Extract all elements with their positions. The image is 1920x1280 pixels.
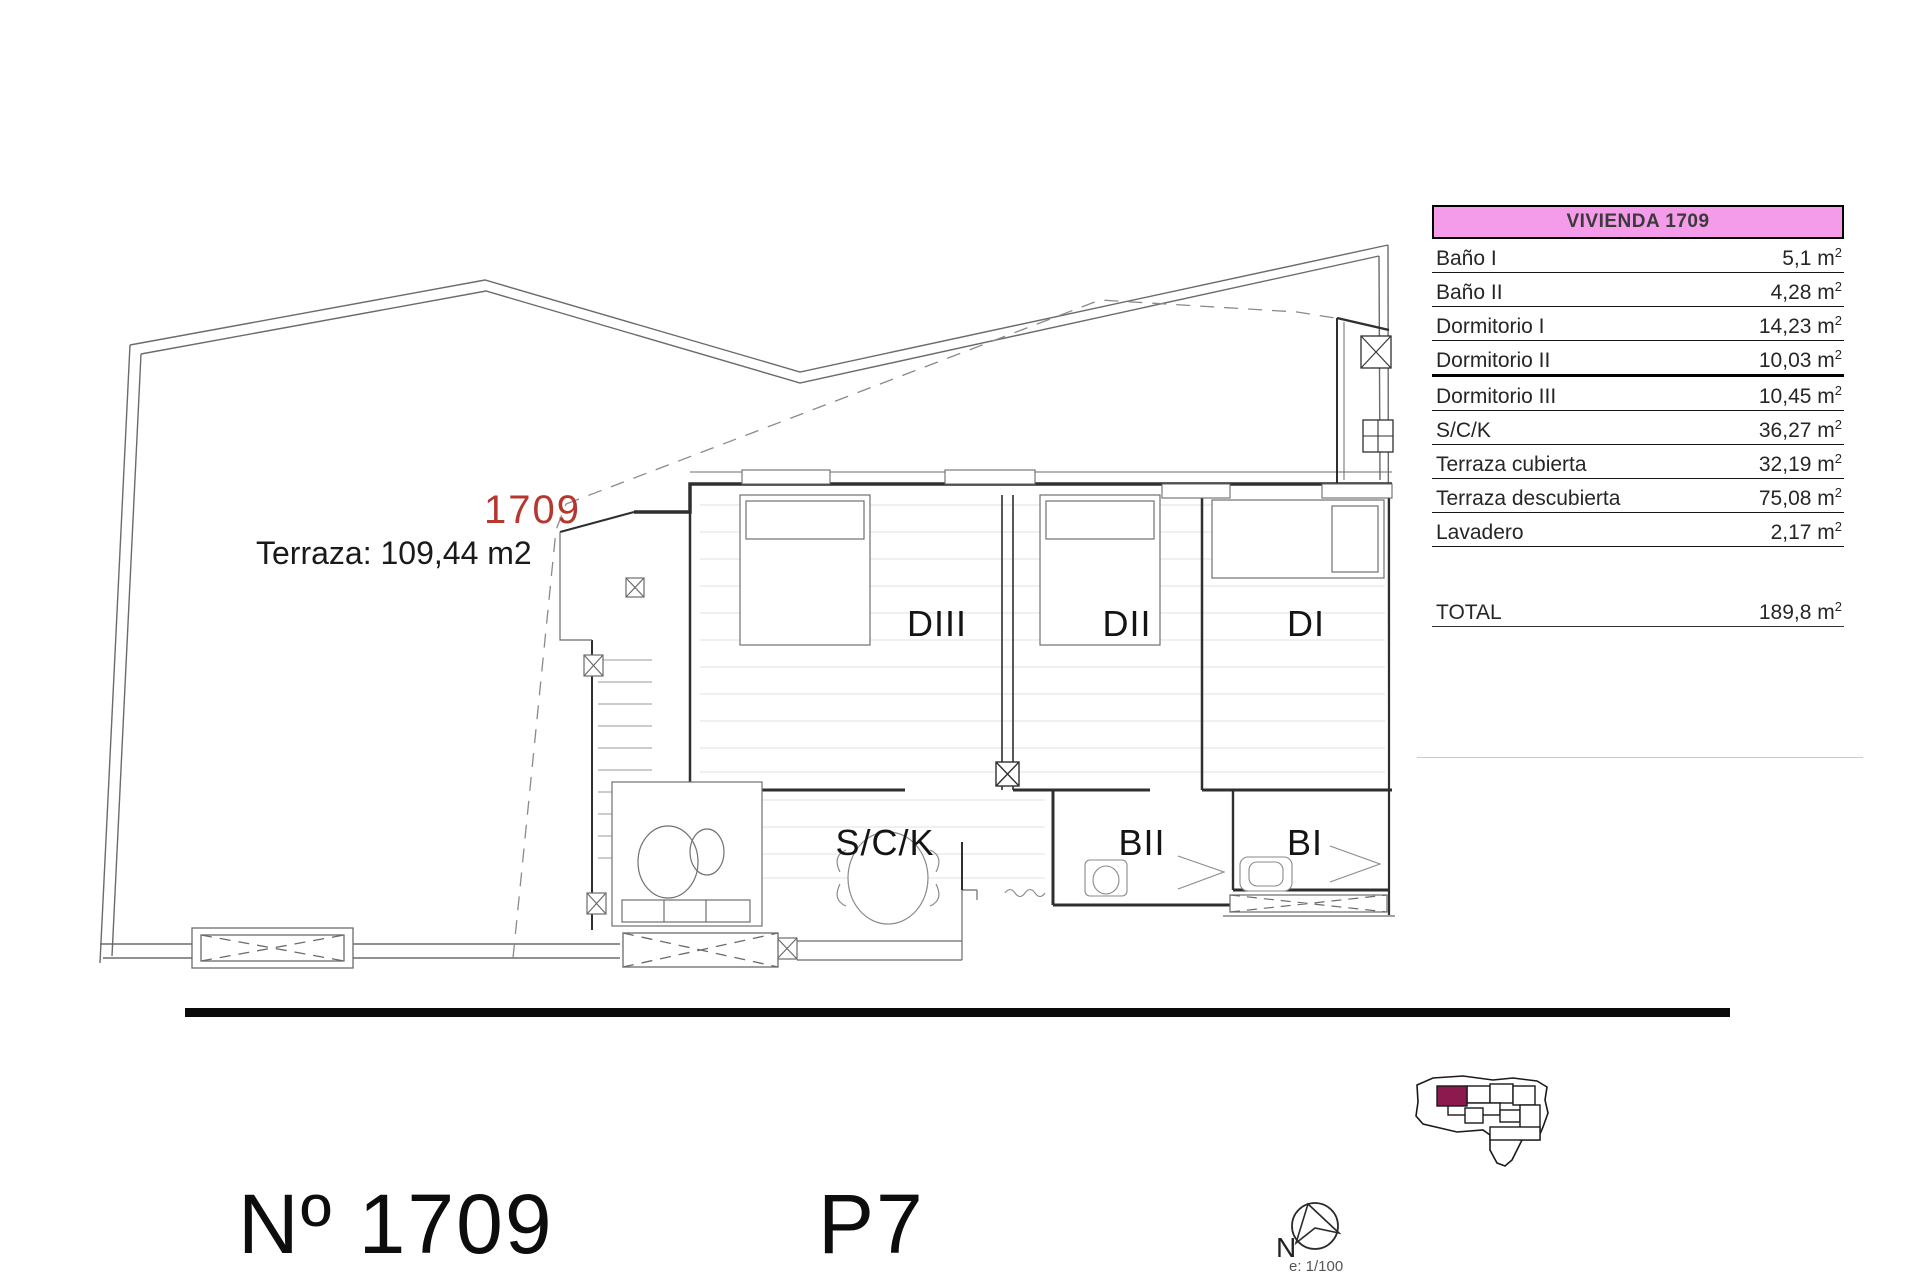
area-table-row: Lavadero 2,17 m2 bbox=[1432, 513, 1844, 547]
row-label: Baño I bbox=[1436, 247, 1497, 271]
total-label: TOTAL bbox=[1436, 601, 1502, 625]
area-table-body: Baño I 5,1 m2 Baño II 4,28 m2 Dormitorio… bbox=[1432, 239, 1844, 547]
area-table-row: Terraza cubierta 32,19 m2 bbox=[1432, 445, 1844, 479]
planter-box-kitchen bbox=[623, 933, 778, 967]
row-label: S/C/K bbox=[1436, 419, 1491, 443]
footer-separator-line bbox=[185, 1008, 1730, 1017]
floorplan-page: 1709 Terraza: 109,44 m2 DIII DII DI S/C/… bbox=[0, 0, 1920, 1280]
row-label: Dormitorio I bbox=[1436, 315, 1545, 339]
row-value: 10,03 m2 bbox=[1759, 347, 1842, 373]
keyplan-unit-highlight bbox=[1437, 1086, 1467, 1106]
row-label: Terraza cubierta bbox=[1436, 453, 1587, 477]
unit-number-on-plan: 1709 bbox=[484, 488, 581, 533]
terrace-area-label: Terraza: 109,44 m2 bbox=[256, 535, 532, 572]
area-table-row: Baño II 4,28 m2 bbox=[1432, 273, 1844, 307]
area-table-row: Dormitorio III 10,45 m2 bbox=[1432, 377, 1844, 411]
row-value: 2,17 m2 bbox=[1771, 519, 1842, 545]
area-table-row: Baño I 5,1 m2 bbox=[1432, 239, 1844, 273]
area-table: VIVIENDA 1709 Baño I 5,1 m2 Baño II 4,28… bbox=[1432, 205, 1844, 627]
area-table-row: Dormitorio I 14,23 m2 bbox=[1432, 307, 1844, 341]
room-label-dormitorio-iii: DIII bbox=[907, 603, 967, 645]
area-table-total-row: TOTAL 189,8 m2 bbox=[1432, 593, 1844, 627]
row-value: 5,1 m2 bbox=[1782, 245, 1842, 271]
row-value: 36,27 m2 bbox=[1759, 417, 1842, 443]
row-value: 32,19 m2 bbox=[1759, 451, 1842, 477]
kitchen-unit bbox=[612, 782, 762, 926]
row-label: Dormitorio II bbox=[1436, 349, 1550, 373]
planter-box-left bbox=[192, 928, 353, 968]
room-label-sck: S/C/K bbox=[835, 822, 934, 864]
area-table-row: Dormitorio II 10,03 m2 bbox=[1432, 341, 1844, 377]
planter-box-bi bbox=[1223, 895, 1395, 916]
north-arrow-icon bbox=[1292, 1203, 1339, 1249]
area-table-row: S/C/K 36,27 m2 bbox=[1432, 411, 1844, 445]
row-label: Lavadero bbox=[1436, 521, 1524, 545]
total-value: 189,8 m2 bbox=[1759, 599, 1842, 625]
row-label: Baño II bbox=[1436, 281, 1503, 305]
table-frame-line bbox=[1417, 757, 1863, 758]
sheet-unit-title: Nº 1709 bbox=[238, 1176, 554, 1273]
room-label-bano-i: BI bbox=[1287, 822, 1323, 864]
scale-label: e: 1/100 bbox=[1289, 1258, 1343, 1275]
room-label-dormitorio-i: DI bbox=[1287, 603, 1325, 645]
pillar-x bbox=[996, 762, 1019, 786]
row-value: 10,45 m2 bbox=[1759, 383, 1842, 409]
row-label: Terraza descubierta bbox=[1436, 487, 1620, 511]
sheet-floor-label: P7 bbox=[818, 1176, 925, 1273]
room-label-dormitorio-ii: DII bbox=[1102, 603, 1151, 645]
lavadero-room bbox=[1337, 318, 1393, 483]
row-value: 14,23 m2 bbox=[1759, 313, 1842, 339]
room-label-bano-ii: BII bbox=[1118, 822, 1165, 864]
row-label: Dormitorio III bbox=[1436, 385, 1556, 409]
row-value: 75,08 m2 bbox=[1759, 485, 1842, 511]
keyplan bbox=[1416, 1076, 1548, 1166]
area-table-header: VIVIENDA 1709 bbox=[1432, 205, 1844, 239]
area-table-row: Terraza descubierta 75,08 m2 bbox=[1432, 479, 1844, 513]
bathroom-walls bbox=[962, 790, 1389, 905]
row-value: 4,28 m2 bbox=[1771, 279, 1842, 305]
